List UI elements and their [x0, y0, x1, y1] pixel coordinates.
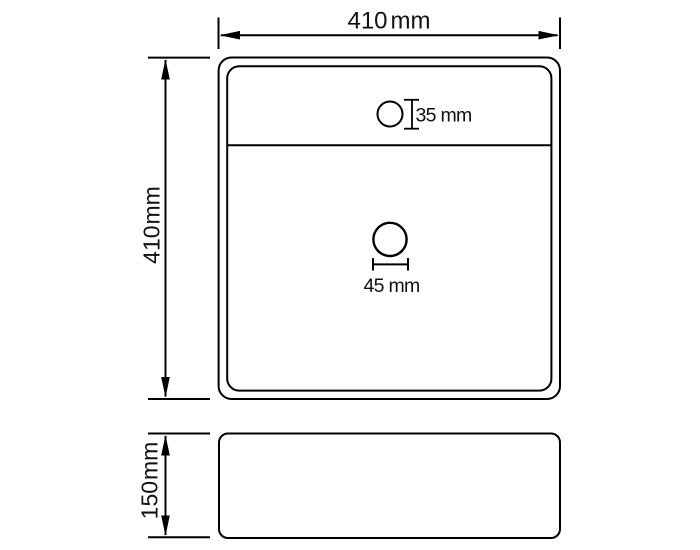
svg-text:410mm: 410mm [139, 186, 165, 264]
svg-text:150mm: 150mm [137, 442, 163, 520]
svg-text:35 mm: 35 mm [416, 104, 472, 126]
svg-text:45 mm: 45 mm [363, 275, 419, 297]
